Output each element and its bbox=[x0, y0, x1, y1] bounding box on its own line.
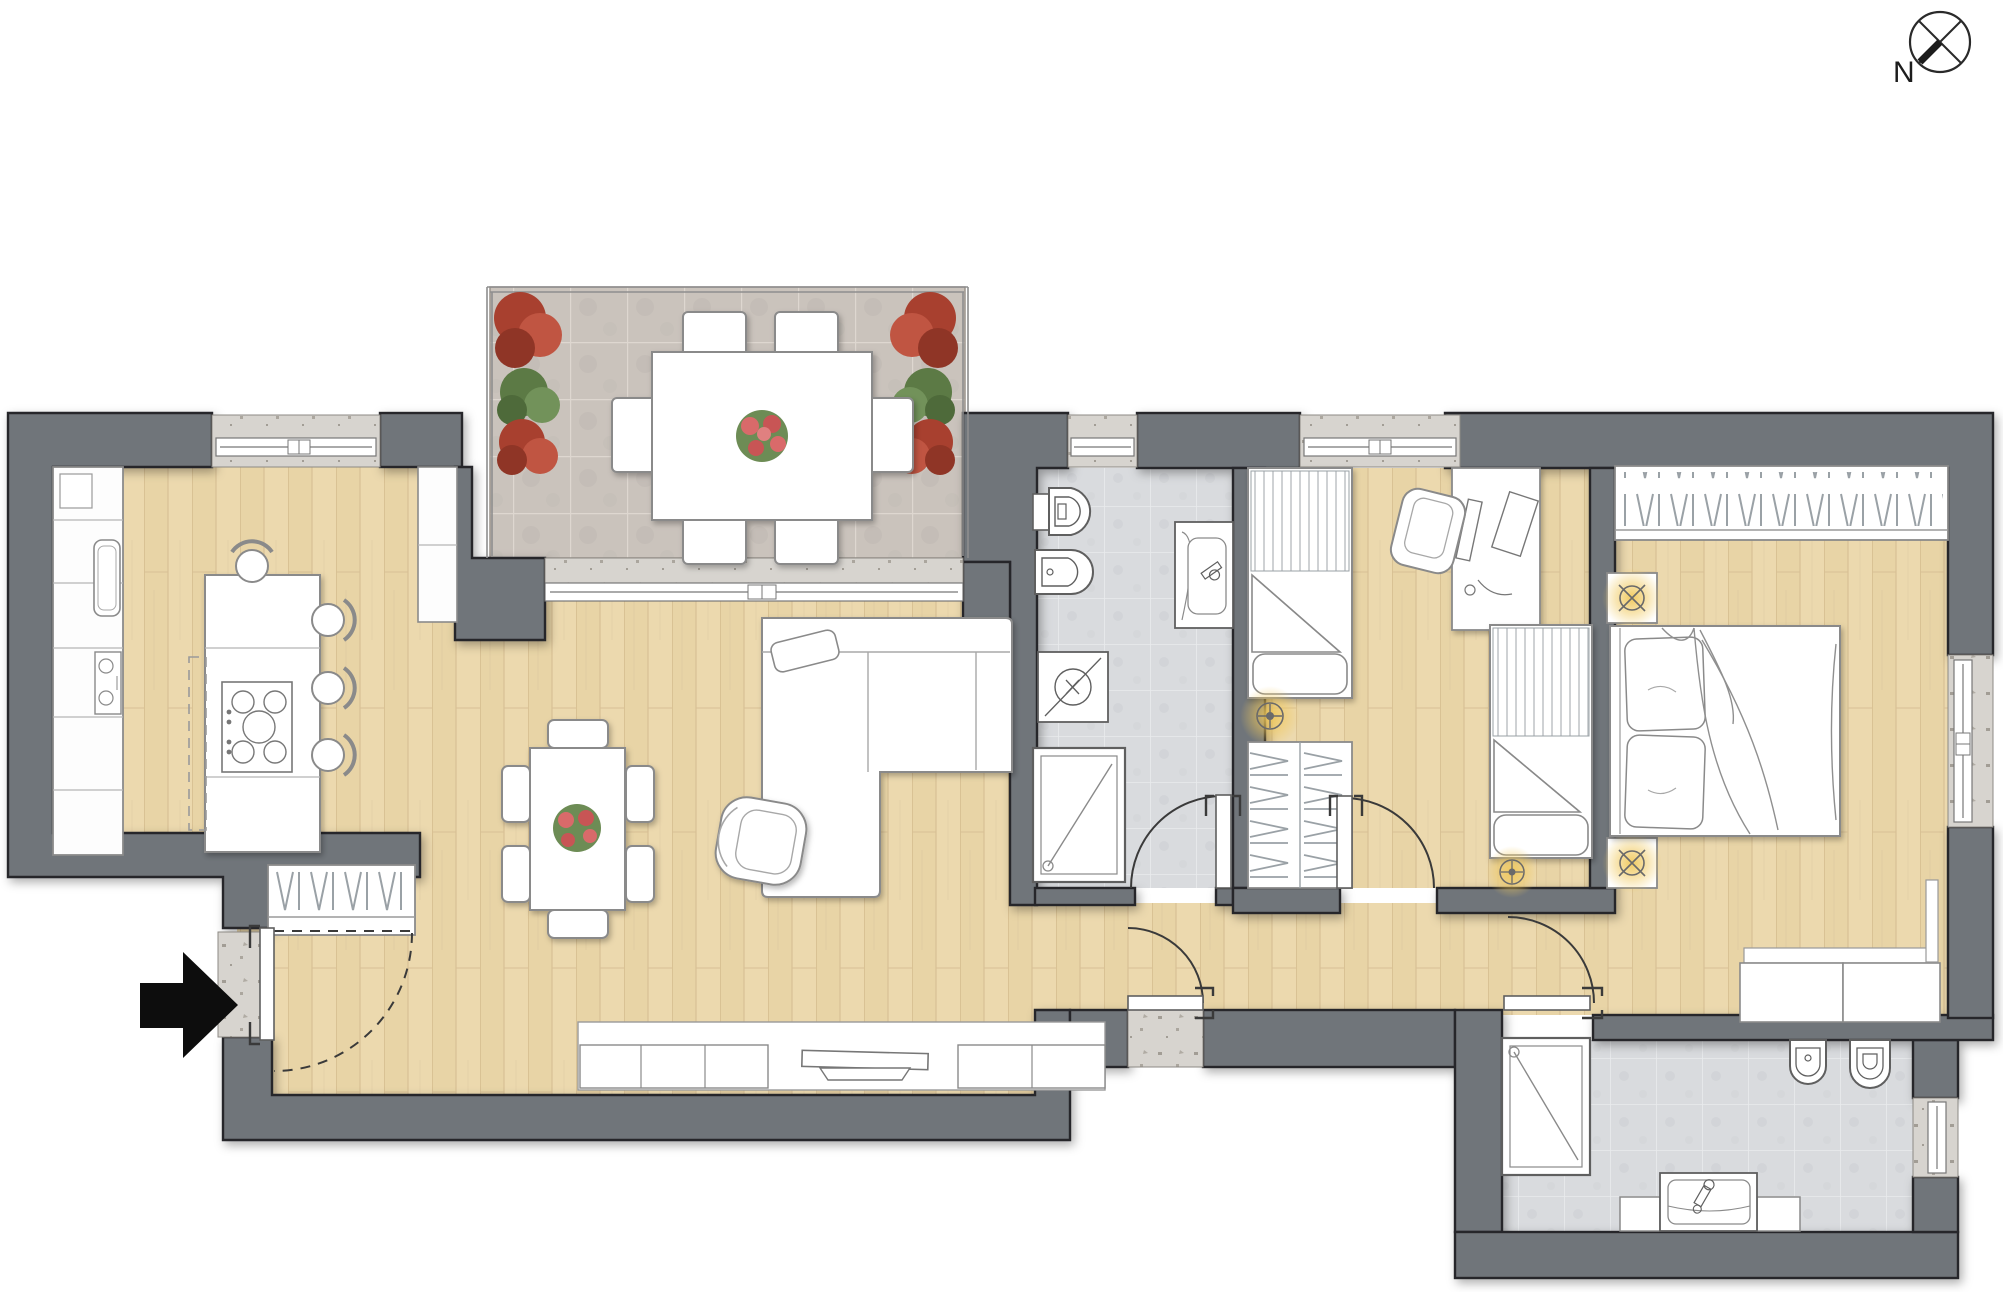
toilet bbox=[1850, 1040, 1890, 1088]
wall-bedroom2-bottom-a bbox=[1233, 888, 1340, 913]
kitchen-oven bbox=[95, 652, 121, 714]
wall-top-mid bbox=[1137, 413, 1300, 468]
toilet bbox=[1033, 488, 1090, 535]
ceiling-light bbox=[1486, 846, 1538, 898]
bidet bbox=[1035, 550, 1093, 594]
wall-master-right-lower bbox=[1948, 827, 1993, 1018]
flower-centerpiece bbox=[736, 410, 788, 462]
kitchen-counter bbox=[53, 467, 123, 855]
wall-bath1-bottom-a bbox=[1035, 888, 1135, 905]
cooktop bbox=[222, 682, 292, 772]
floor-plan: N bbox=[0, 0, 2003, 1292]
shower bbox=[1502, 1038, 1590, 1175]
tv-cabinet bbox=[578, 1022, 1105, 1090]
master-wardrobe bbox=[1615, 466, 1948, 540]
desk bbox=[1452, 468, 1540, 630]
washing-machine bbox=[1038, 652, 1108, 722]
north-label: N bbox=[1893, 56, 1915, 89]
terrace-sliding-door bbox=[545, 558, 963, 601]
coat-closet bbox=[268, 865, 415, 935]
dining-chair bbox=[548, 910, 608, 938]
nightstand bbox=[1602, 833, 1662, 893]
dining-chair bbox=[502, 766, 530, 822]
dining-chair bbox=[626, 766, 654, 822]
flower-centerpiece bbox=[553, 804, 601, 852]
wall-bath2-left bbox=[1455, 1010, 1502, 1232]
double-bed bbox=[1610, 626, 1840, 836]
wall-corridor-bottom-b bbox=[1203, 1010, 1455, 1067]
single-bed-right bbox=[1490, 625, 1592, 858]
north-compass-icon: N bbox=[1893, 12, 1970, 89]
bedroom2-window bbox=[1300, 415, 1460, 467]
wall-bath2-bottom bbox=[1455, 1232, 1958, 1278]
nightstand bbox=[1602, 568, 1662, 628]
entry-threshold bbox=[218, 932, 262, 1037]
pillow bbox=[1624, 735, 1705, 830]
dining-chair bbox=[548, 720, 608, 748]
bathroom2-window bbox=[1913, 1098, 1958, 1177]
kitchen-window bbox=[212, 415, 380, 467]
master-window bbox=[1948, 655, 1993, 827]
kitchen-island bbox=[205, 575, 320, 852]
bathroom1-window bbox=[1068, 415, 1137, 467]
vanity-sink bbox=[1175, 522, 1233, 628]
wall-bath1-bottom-b bbox=[1216, 888, 1233, 905]
armchair bbox=[712, 793, 811, 889]
wall-bath2-right-upper bbox=[1913, 1040, 1958, 1098]
bidet bbox=[1790, 1040, 1826, 1084]
wall-bath2-right-lower bbox=[1913, 1177, 1958, 1232]
pillow bbox=[1624, 637, 1705, 732]
kitchen-appliance bbox=[60, 474, 92, 508]
single-bed-left bbox=[1248, 468, 1352, 698]
dining-chair bbox=[626, 846, 654, 902]
shower bbox=[1033, 748, 1125, 882]
dining-chair bbox=[502, 846, 530, 902]
ceiling-light bbox=[1240, 686, 1300, 746]
wall-kitchen-top-right bbox=[380, 413, 462, 467]
